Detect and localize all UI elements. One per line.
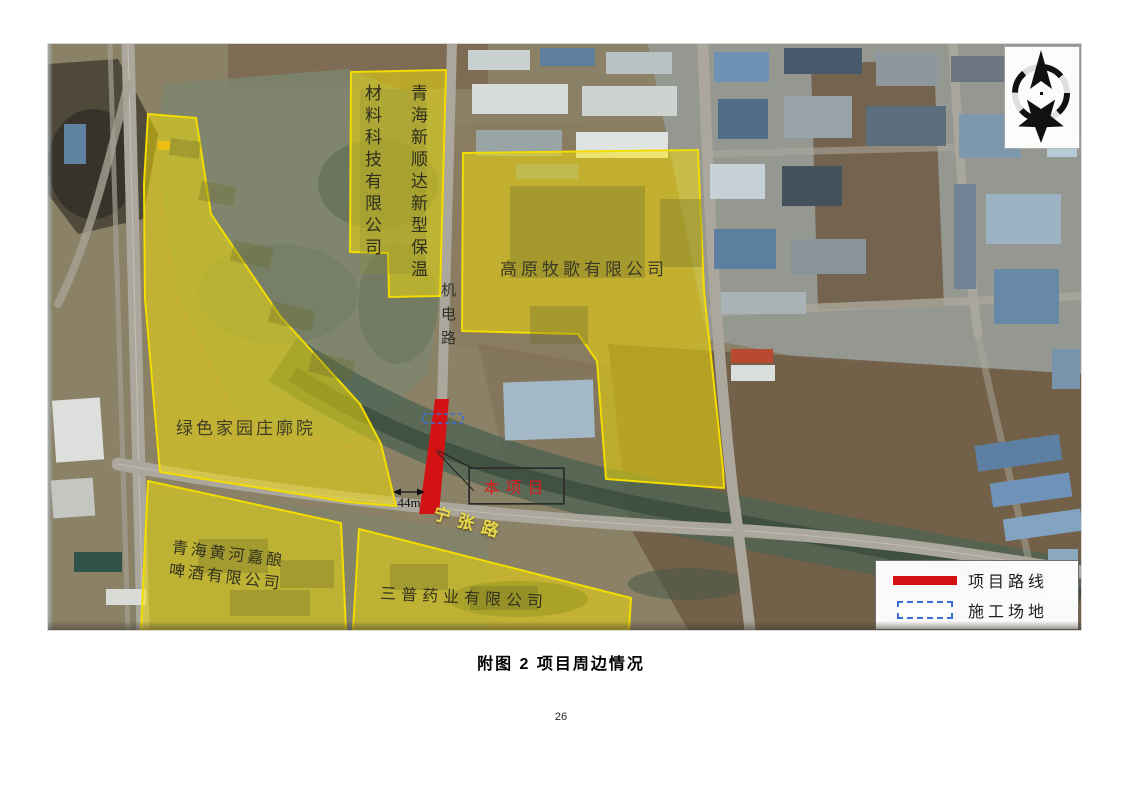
area-label-xinshunda: 青海新顺达新型保温材料科技有限公司 [348, 84, 440, 288]
area-label-gaoyuan: 高原牧歌有限公司 [500, 260, 668, 280]
project-callout-label: 本项目 [483, 474, 549, 498]
legend-route-row: 项目路线 [882, 568, 1072, 592]
satellite-map-figure: 青海新顺达新型保温材料科技有限公司 高原牧歌有限公司 绿色家园庄廓院 青海黄河嘉… [47, 43, 1082, 631]
road-width-label: 44m [388, 495, 430, 511]
legend-site-swatch [882, 601, 968, 619]
road-label-jidianlu: 机电路 [438, 282, 456, 354]
project-callout: 本项目 [469, 468, 564, 504]
legend-site-row: 施工场地 [882, 598, 1072, 622]
photo-left-edge [48, 44, 53, 630]
legend-route-swatch [882, 576, 968, 585]
figure-caption: 附图 2 项目周边情况 [0, 650, 1122, 674]
photo-bottom-edge [48, 621, 1081, 630]
legend-route-label: 项目路线 [968, 568, 1048, 592]
map-legend: 项目路线 施工场地 [875, 560, 1079, 630]
area-label-lvse: 绿色家园庄廓院 [176, 419, 316, 439]
north-compass [1005, 47, 1079, 148]
legend-site-label: 施工场地 [968, 598, 1048, 622]
page-number: 26 [0, 711, 1122, 723]
north-compass-icon [1005, 47, 1079, 148]
